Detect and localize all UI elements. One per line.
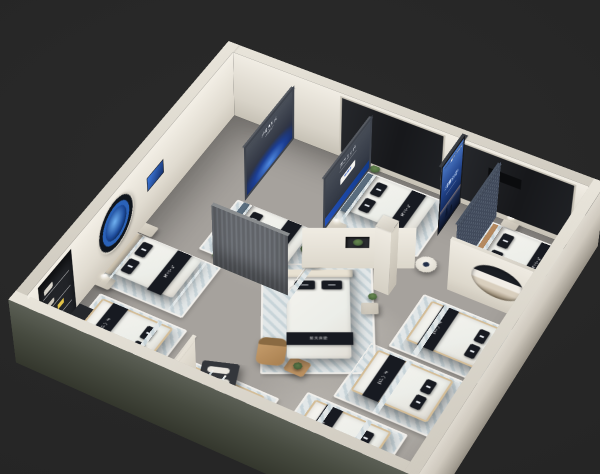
bed-pillow <box>134 241 154 258</box>
floorplan-scene: 护脊黑科技 AI 智能助眠 深睡太空舱 智能床垫 航天智造床垫 <box>16 104 598 474</box>
bed-pillow <box>139 325 158 341</box>
bed-pillow <box>419 379 437 395</box>
poster2-label: 智能床垫 <box>344 166 351 179</box>
bed-headboard <box>284 267 353 277</box>
showroom-render: 护脊黑科技 AI 智能助眠 深睡太空舱 智能床垫 航天智造床垫 <box>0 0 600 474</box>
bed-pillow <box>496 233 515 249</box>
runner-label: 航天床垫 <box>163 265 177 278</box>
runner-label: 航天床垫 <box>310 336 328 340</box>
massage-chair <box>255 337 288 367</box>
bed-runner: 航天床垫 <box>417 305 459 351</box>
runner-label: 航天床垫 <box>400 204 413 217</box>
bed-pillow <box>409 394 427 411</box>
bed-runner: 航天床垫 <box>362 354 406 402</box>
bed-pillow <box>294 281 315 290</box>
runner-label: 航天床垫 <box>432 321 445 335</box>
bed-display-center: 航天床垫 <box>287 269 352 358</box>
curved-partition <box>302 228 417 269</box>
bed-pillow <box>369 182 388 198</box>
partition-niche <box>345 237 369 248</box>
bed-pillow <box>358 198 377 214</box>
runner-label: 航天床垫 <box>377 371 390 386</box>
nightstand <box>361 303 379 315</box>
bed-pillow <box>120 258 140 275</box>
bed-pillow <box>321 281 342 290</box>
wall-tv <box>147 159 164 192</box>
rack-pillow <box>207 366 230 375</box>
table-bowl <box>422 261 431 267</box>
bed-runner: 航天床垫 <box>284 332 353 345</box>
